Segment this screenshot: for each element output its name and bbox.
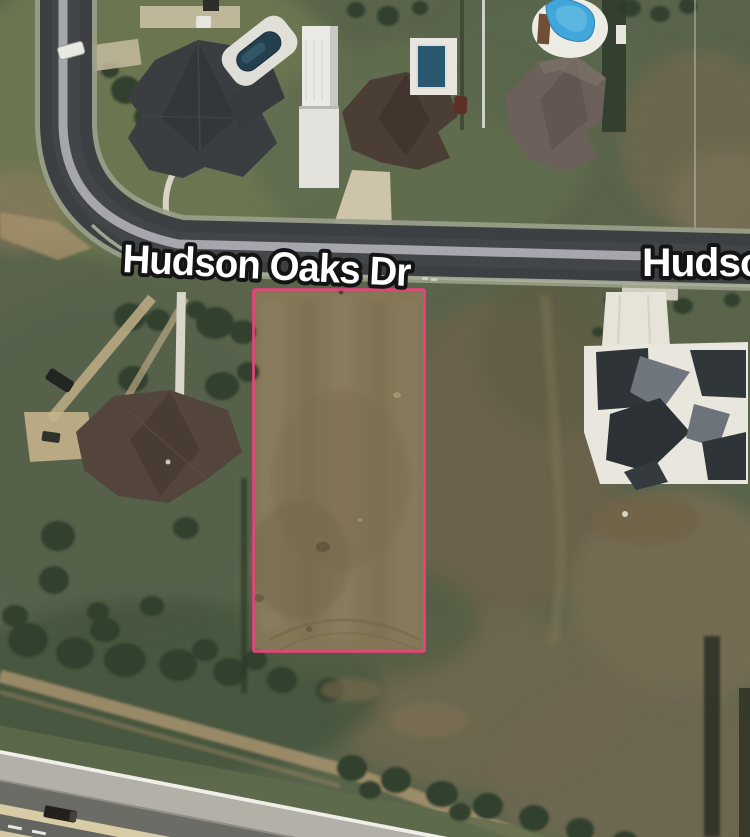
house-complex-right (584, 342, 748, 490)
fence-line (694, 0, 696, 230)
lap-pool (410, 38, 457, 95)
aerial-map-screenshot: Hudson Oaks Dr Hudso (0, 0, 750, 837)
tree-shadow-strip (739, 688, 750, 837)
vacant-lot-ground (250, 289, 425, 652)
street-label-truncated: Hudso (642, 241, 750, 285)
white-car (196, 16, 211, 28)
swimming-pool-blue (532, 0, 608, 58)
satellite-basemap: Hudson Oaks Dr Hudso (0, 0, 750, 837)
tree-shadow-strip (704, 636, 720, 837)
white-barn (299, 26, 339, 188)
red-car (454, 96, 468, 115)
ground-debris (622, 511, 628, 517)
fence-hedge-row (241, 478, 247, 693)
white-fence-line (482, 0, 485, 128)
white-gate (616, 25, 626, 44)
dark-suv (203, 0, 219, 11)
